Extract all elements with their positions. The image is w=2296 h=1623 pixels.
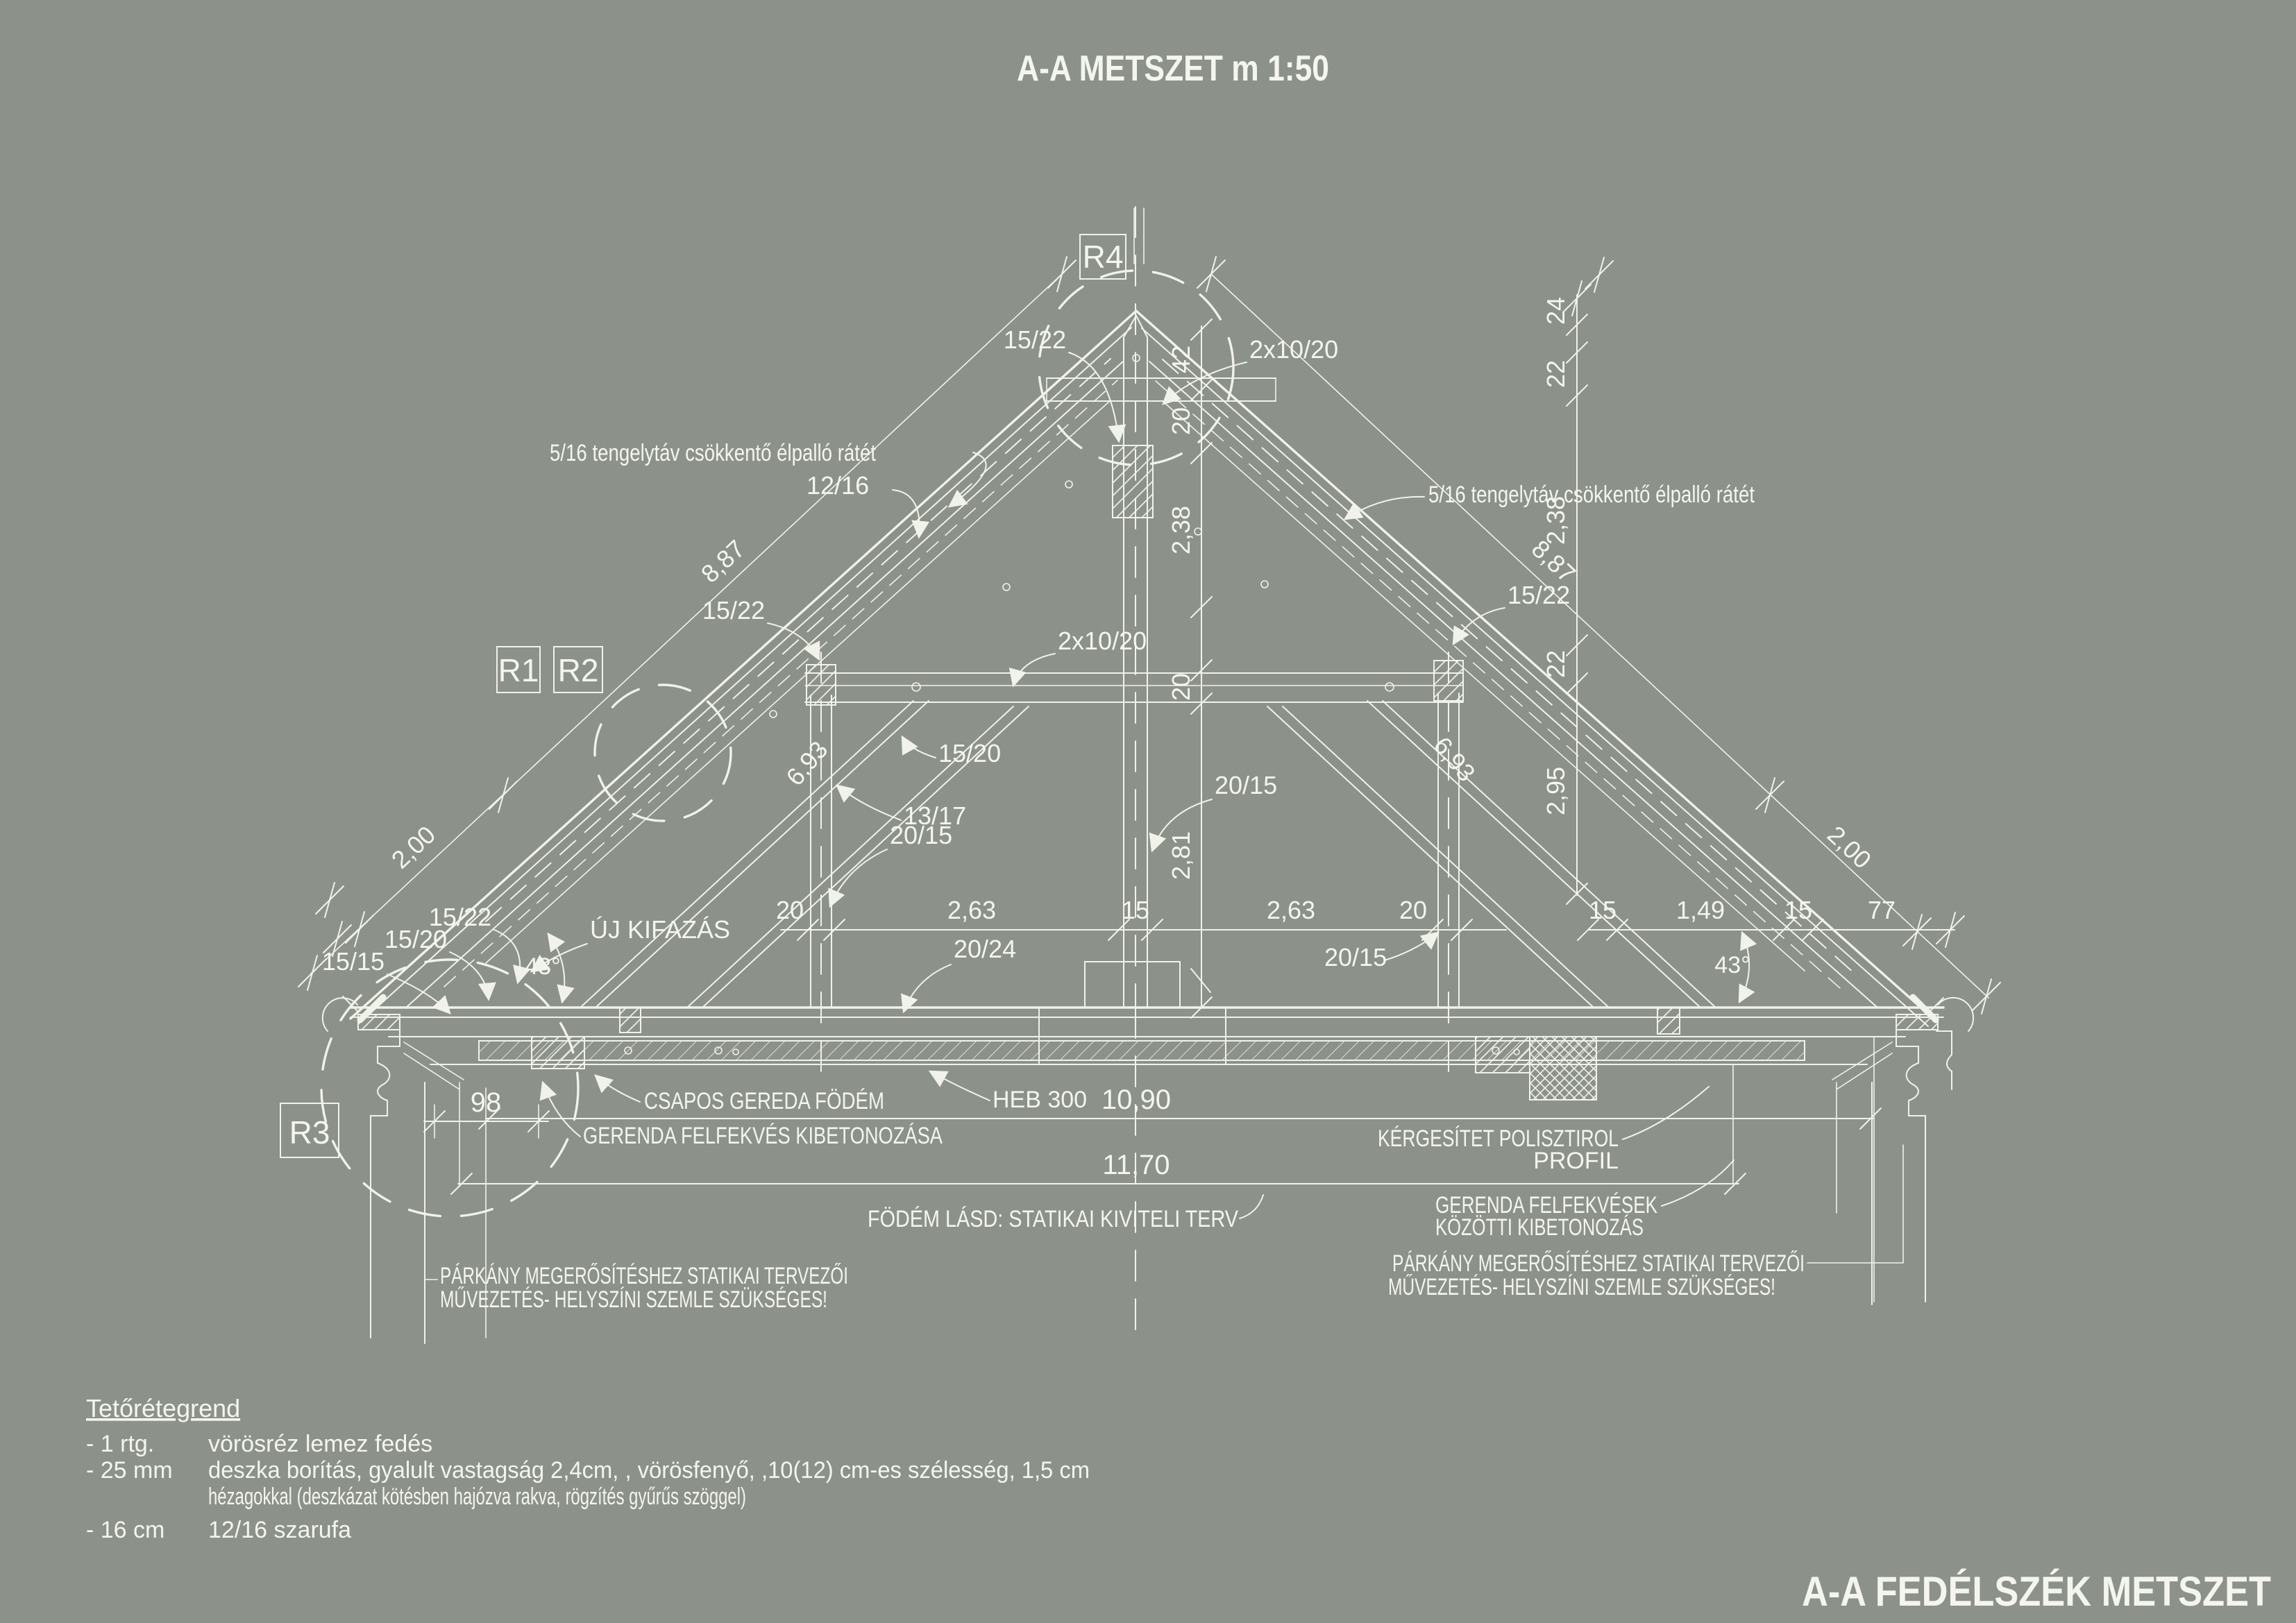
label-leftpost-20-15: 20/15	[890, 821, 952, 849]
label-heb-300: HEB 300	[993, 1087, 1087, 1113]
legend-row2-qty: - 25 mm	[86, 1457, 173, 1484]
label-angle-right: 43°	[1714, 952, 1750, 978]
diagonal-dimension-left	[298, 257, 1076, 990]
label-rightpost-20-15: 20/15	[1324, 943, 1387, 971]
dim-mid-263-right: 2,63	[1267, 896, 1315, 924]
dim-right-149: 1,49	[1676, 896, 1725, 924]
dim-right-15b: 15	[1784, 896, 1812, 924]
label-parkany-right-line2: MŰVEZETÉS- HELYSZÍNI SZEMLE SZÜKSÉGES!	[1388, 1274, 1775, 1300]
dim-diag-left-887: 8,87	[695, 534, 750, 588]
left-edge-ticks	[316, 883, 351, 956]
label-ridge-2x10-20: 2x10/20	[1249, 335, 1338, 364]
label-parkany-right-line1: PÁRKÁNY MEGERŐSÍTÉSHEZ STATIKAI TERVEZŐI	[1392, 1250, 1805, 1277]
label-uj-kifazas: ÚJ KIFAZÁS	[590, 915, 730, 944]
label-15-20: 15/20	[938, 739, 1001, 767]
dim-vright-22a: 22	[1542, 360, 1570, 388]
legend-row3-desc: hézagokkal (deszkázat kötésben hajózva r…	[208, 1484, 746, 1510]
label-parkany-left-line2: MŰVEZETÉS- HELYSZÍNI SZEMLE SZÜKSÉGES!	[440, 1286, 827, 1313]
label-ratet-right: 5/16 tengelytáv csökkentő élpalló rátét	[1428, 482, 1755, 508]
label-eaves-15-20: 15/20	[385, 925, 447, 953]
dim-mid-263-left: 2,63	[947, 896, 996, 924]
label-parkany-left-line1: PÁRKÁNY MEGERŐSÍTÉSHEZ STATIKAI TERVEZŐI	[440, 1263, 848, 1289]
legend-row1-qty: - 1 rtg.	[86, 1431, 154, 1457]
legend-row4-qty: - 16 cm	[86, 1517, 164, 1543]
label-eaves-15-15: 15/15	[322, 947, 385, 976]
legend-row4-desc: 12/16 szarufa	[208, 1517, 351, 1543]
dim-vright-295: 2,95	[1542, 767, 1570, 815]
dim-right-77: 77	[1868, 896, 1896, 924]
bolt-symbols	[770, 481, 1394, 717]
right-rafter	[1136, 311, 1936, 1026]
label-felfekvesek-line2: KÖZÖTTI KIBETONOZÁS	[1435, 1214, 1644, 1241]
label-20-24: 20/24	[954, 935, 1016, 963]
sheet-footer-title: A-A FEDÉLSZÉK METSZET	[1802, 1568, 2271, 1615]
label-gerenda-felfekves: GERENDA FELFEKVÉS KIBETONOZÁSA	[583, 1123, 943, 1149]
dim-vright-22b: 22	[1542, 650, 1570, 678]
dim-wall-98: 98	[471, 1087, 502, 1118]
annotation-labels: 5/16 tengelytáv csökkentő élpalló rátét …	[322, 325, 1805, 1313]
right-vertical-dimension	[1563, 257, 1613, 904]
dim-vcenter-281: 2,81	[1167, 831, 1195, 880]
label-post-left-15-22: 15/22	[702, 596, 765, 624]
roof-layer-legend: Tetőrétegrend - 1 rtg. vörösréz lemez fe…	[86, 1394, 1090, 1543]
label-angle-left: 43°	[525, 953, 560, 980]
dim-mid-20-left: 20	[776, 896, 804, 924]
legend-row2-desc: deszka borítás, gyalult vastagság 2,4cm,…	[208, 1457, 1090, 1484]
detail-marker-r3: R3	[289, 1114, 330, 1150]
dim-right-15a: 15	[1589, 896, 1617, 924]
dim-level-1170: 11,70	[1102, 1150, 1170, 1180]
dim-vcenter-20b: 20	[1167, 673, 1195, 701]
dim-vcenter-238: 2,38	[1167, 506, 1195, 554]
dim-vcenter-42: 42	[1167, 346, 1195, 373]
detail-marker-boxes: R4 R1 R2 R3	[280, 235, 1126, 1157]
label-collar-2x10-20: 2x10/20	[1058, 627, 1147, 655]
drawing-sheet: A-A METSZET m 1:50 A-A FEDÉLSZÉK METSZET…	[0, 0, 2296, 1623]
dim-eaves-left-200: 2,00	[386, 820, 441, 874]
label-ridge-15-22: 15/22	[1004, 325, 1066, 354]
sheet-title: A-A METSZET m 1:50	[1017, 49, 1329, 89]
label-kergesitet-line2: PROFIL	[1533, 1148, 1619, 1174]
dim-mid-20-right: 20	[1399, 896, 1427, 924]
dim-vcenter-20a: 20	[1167, 407, 1195, 435]
dim-eaves-right-200: 2,00	[1822, 820, 1877, 874]
queen-post-right	[1434, 652, 1463, 1072]
label-csapos: CSAPOS GEREDA FÖDÉM	[644, 1088, 884, 1114]
detail-marker-r1: R1	[498, 652, 539, 688]
dim-vright-24: 24	[1542, 297, 1570, 325]
queen-post-left	[807, 652, 836, 1072]
dim-mid-15: 15	[1122, 896, 1149, 924]
label-fodem-lasd: FÖDÉM LÁSD: STATIKAI KIVITELI TERV	[868, 1206, 1238, 1232]
detail-marker-r4: R4	[1083, 239, 1124, 275]
tie-beam-and-slab	[351, 1008, 1943, 1064]
section-drawing: A-A METSZET m 1:50 A-A FEDÉLSZÉK METSZET…	[0, 0, 2296, 1623]
detail-marker-r2: R2	[558, 652, 599, 688]
dim-post-right-693: 6,93	[1428, 731, 1480, 787]
legend-row1-desc: vörösréz lemez fedés	[208, 1431, 432, 1457]
label-king-20-15: 20/15	[1215, 771, 1277, 799]
label-12-16: 12/16	[807, 471, 869, 500]
label-ratet-left: 5/16 tengelytáv csökkentő élpalló rátét	[550, 440, 876, 466]
dim-level-1090: 10,90	[1101, 1085, 1171, 1115]
legend-heading: Tetőrétegrend	[86, 1394, 240, 1422]
